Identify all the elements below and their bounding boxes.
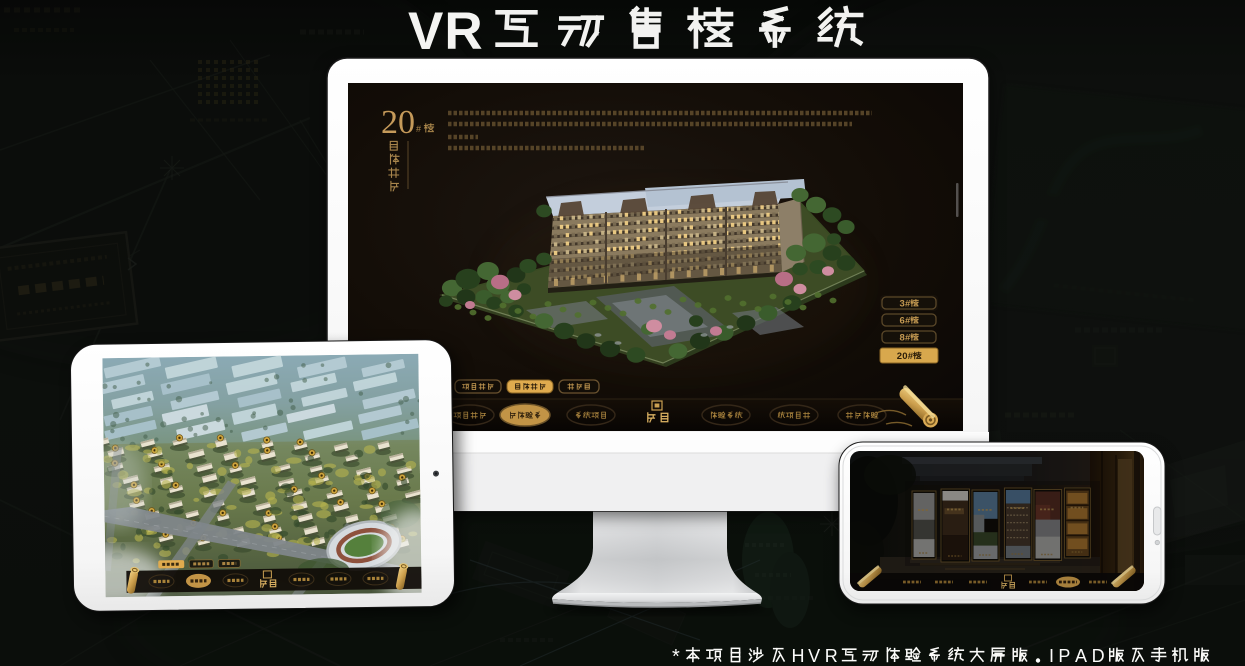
svg-text:0: 0 xyxy=(902,351,907,362)
svg-text:V: V xyxy=(808,646,820,666)
svg-text:#: # xyxy=(905,299,911,310)
svg-text:6: 6 xyxy=(900,316,905,327)
svg-text:I: I xyxy=(1049,646,1054,666)
svg-text:D: D xyxy=(1092,646,1105,666)
svg-text:#: # xyxy=(416,124,421,134)
svg-text:3: 3 xyxy=(900,299,905,310)
svg-text:#: # xyxy=(908,351,914,362)
svg-text:H: H xyxy=(792,646,805,666)
svg-text:#: # xyxy=(905,316,911,327)
svg-text:A: A xyxy=(1075,646,1087,666)
svg-text:*: * xyxy=(672,646,680,666)
svg-text:VR: VR xyxy=(408,2,484,61)
svg-text:P: P xyxy=(1058,646,1070,666)
svg-text:8: 8 xyxy=(900,333,905,344)
svg-text:#: # xyxy=(905,333,911,344)
svg-text:R: R xyxy=(825,646,838,666)
svg-text:20: 20 xyxy=(381,104,415,141)
